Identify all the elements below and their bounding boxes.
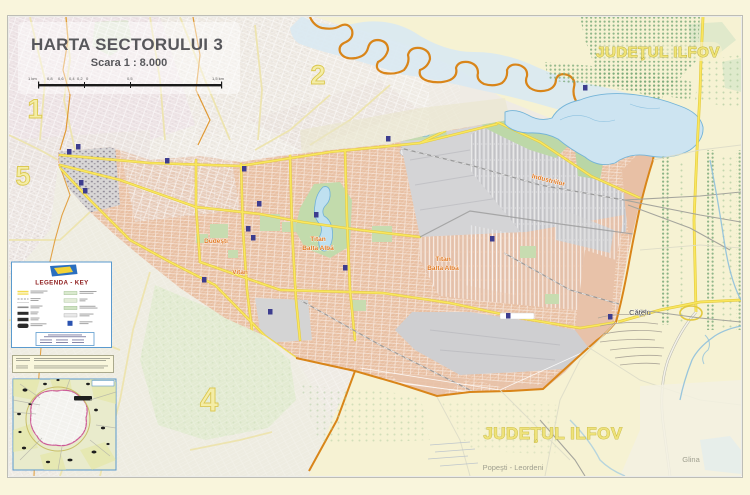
svg-text:Titan: Titan (310, 236, 325, 243)
svg-text:Glina: Glina (682, 455, 700, 464)
svg-text:1,5 km: 1,5 km (212, 76, 225, 81)
svg-text:JUDEŢUL ILFOV: JUDEŢUL ILFOV (483, 424, 623, 443)
svg-text:0,2: 0,2 (77, 76, 83, 81)
svg-text:0,5: 0,5 (127, 76, 133, 81)
svg-text:2: 2 (310, 60, 325, 90)
svg-text:Popeşti - Leordeni: Popeşti - Leordeni (483, 463, 544, 472)
svg-text:Dudeşti: Dudeşti (204, 238, 228, 245)
svg-text:0,8: 0,8 (47, 76, 53, 81)
svg-text:0,4: 0,4 (69, 76, 75, 81)
svg-text:Titan: Titan (435, 256, 450, 263)
svg-text:JUDEŢUL ILFOV: JUDEŢUL ILFOV (596, 44, 720, 61)
svg-text:0,6: 0,6 (58, 76, 64, 81)
svg-text:1 km: 1 km (28, 76, 37, 81)
svg-text:LEGENDA - KEY: LEGENDA - KEY (35, 280, 89, 287)
svg-text:HARTA SECTORULUI 3: HARTA SECTORULUI 3 (31, 35, 223, 54)
svg-text:Vitan: Vitan (232, 269, 248, 276)
svg-text:5: 5 (15, 161, 30, 191)
svg-text:Balta Albă: Balta Albă (302, 245, 334, 252)
svg-text:Căţelu: Căţelu (629, 308, 651, 317)
svg-text:Scara 1 : 8.000: Scara 1 : 8.000 (91, 57, 167, 69)
svg-text:4: 4 (200, 381, 219, 418)
svg-text:Balta Albă: Balta Albă (427, 265, 459, 272)
svg-text:1: 1 (27, 94, 42, 124)
